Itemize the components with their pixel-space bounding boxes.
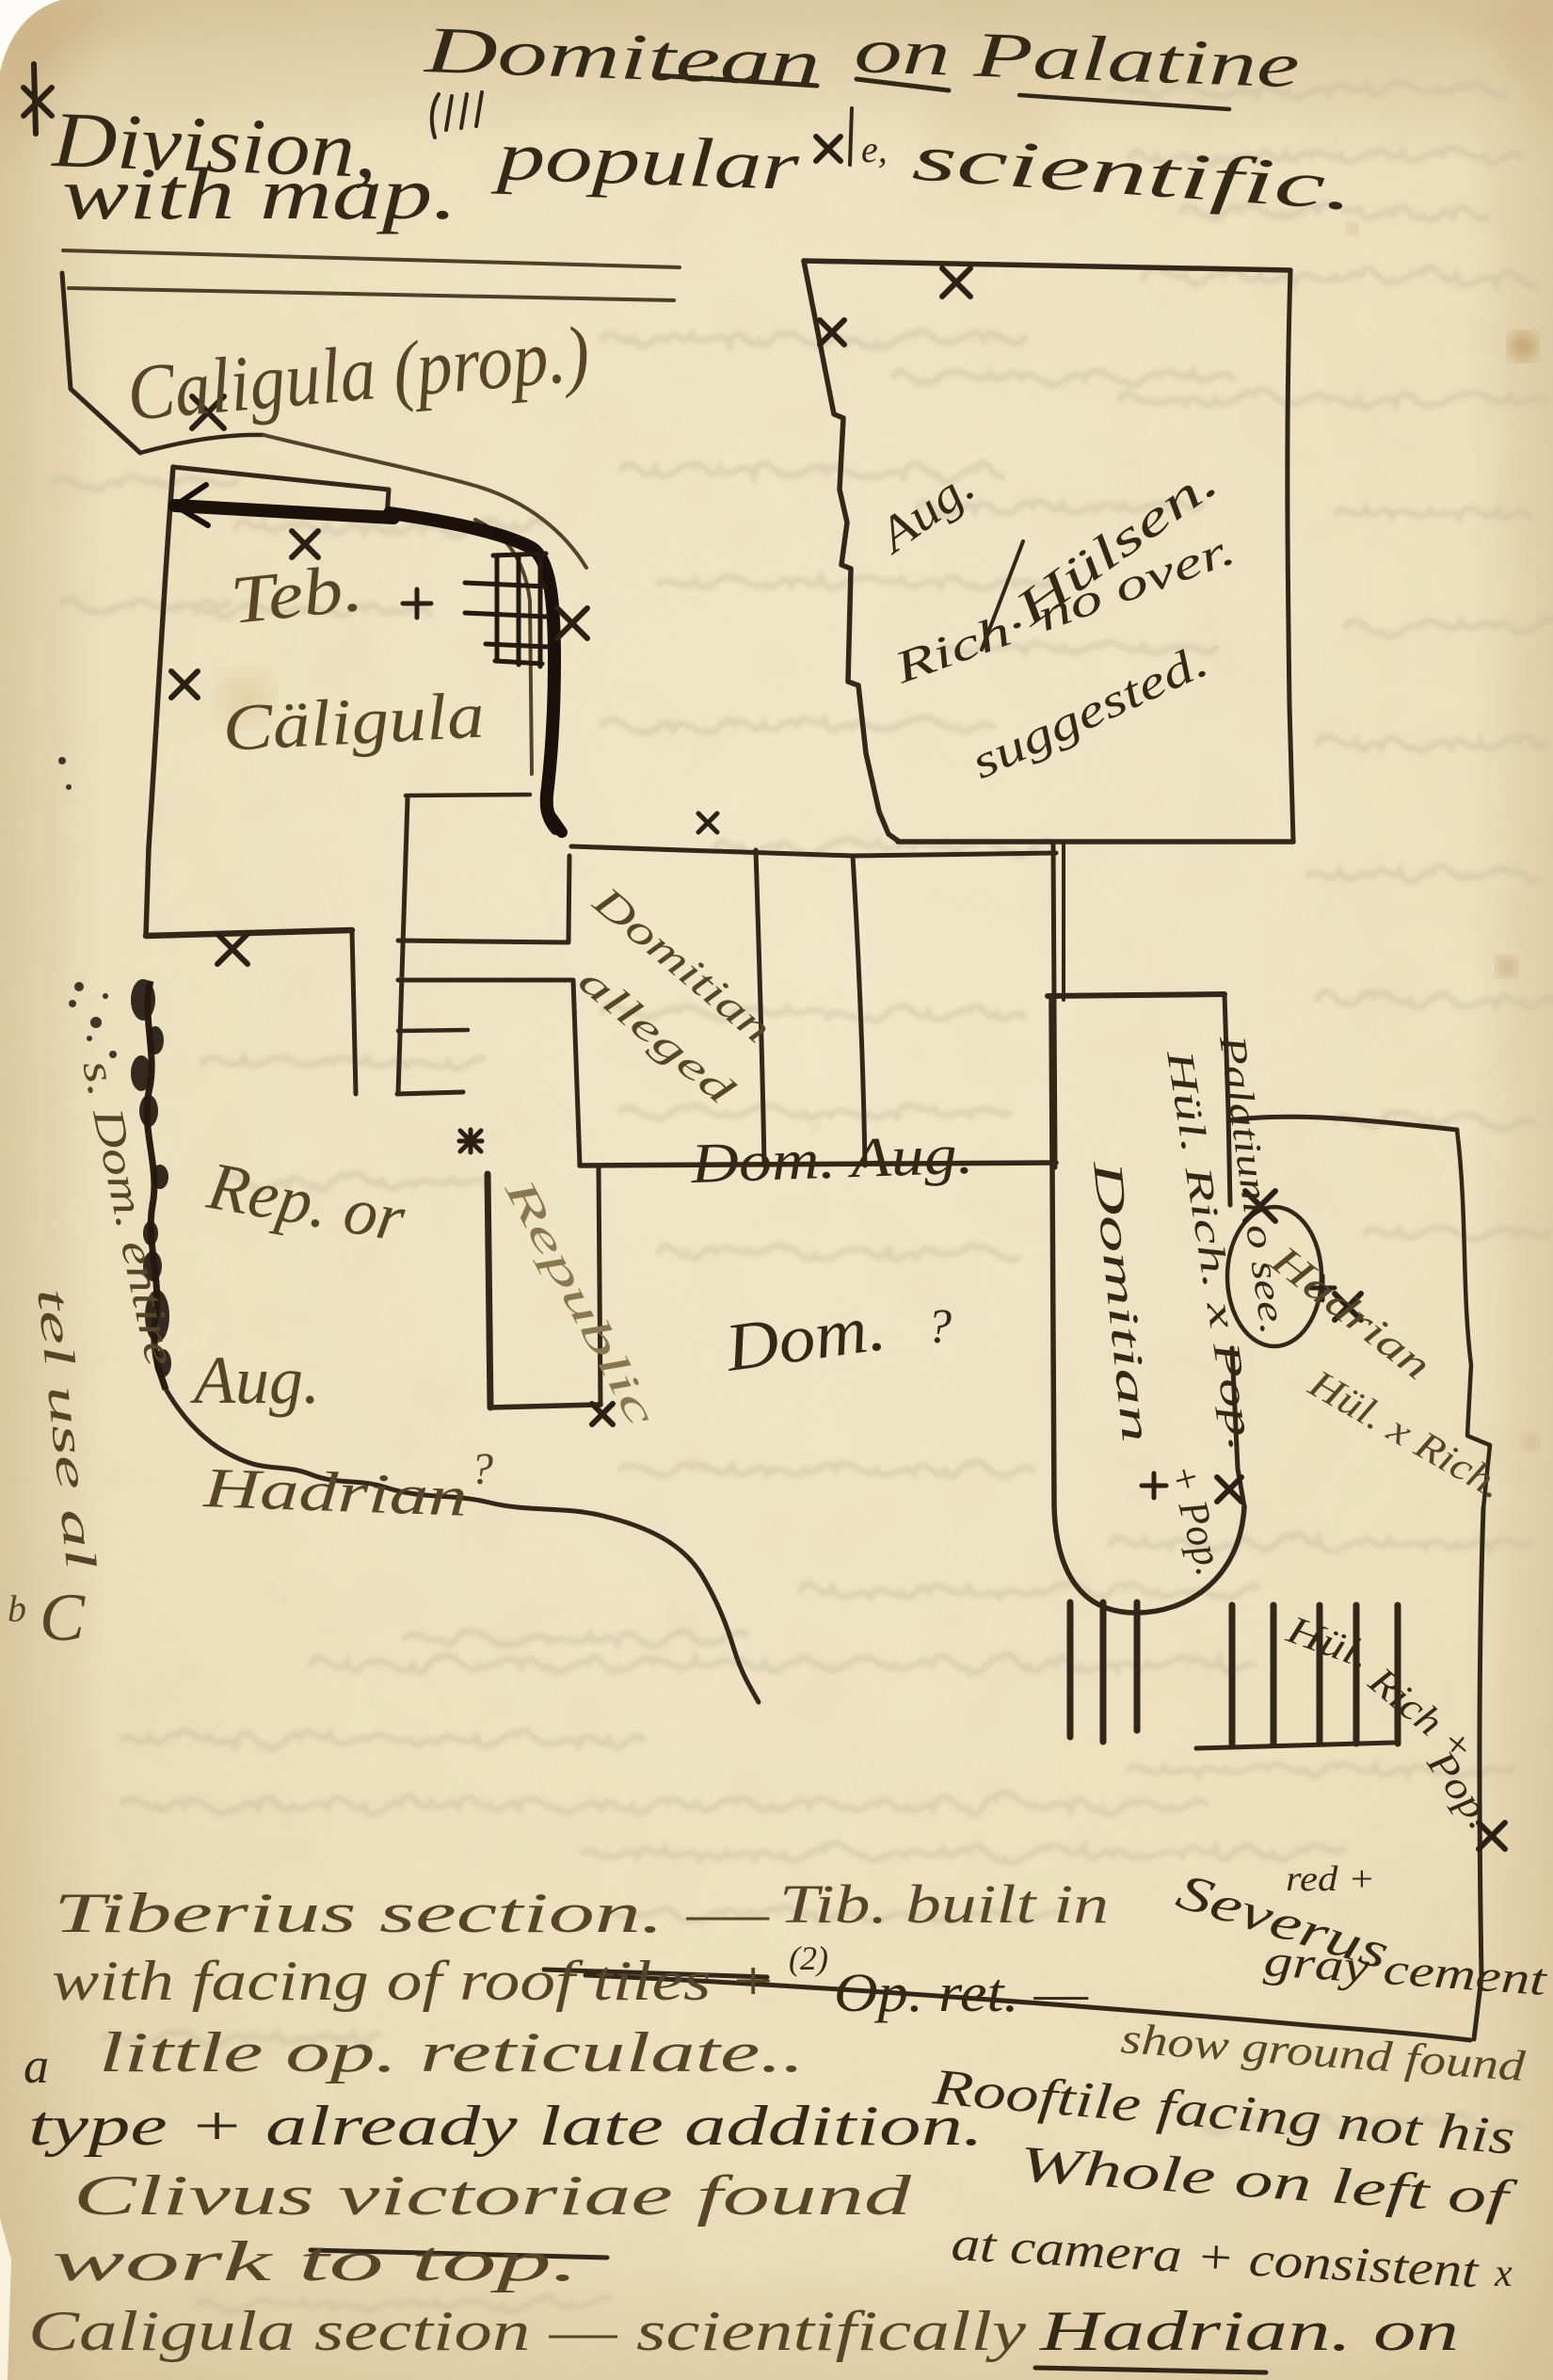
- svg-text:?: ?: [471, 1444, 493, 1494]
- svg-text:red +: red +: [1286, 1859, 1375, 1899]
- svg-text:with map.: with map.: [62, 153, 457, 234]
- svg-text:little op. reticulate..: little op. reticulate..: [99, 2021, 805, 2083]
- svg-text:C: C: [40, 1580, 86, 1655]
- svg-text:Domitean: Domitean: [423, 14, 822, 101]
- svg-text:Caligula section — scientifica: Caligula section — scientifically: [28, 2300, 1026, 2362]
- svg-text:Teb.: Teb.: [227, 550, 366, 638]
- svg-text:Hadrian. on: Hadrian. on: [1038, 2300, 1459, 2362]
- svg-text:type + already late addition.: type + already late addition.: [28, 2095, 984, 2157]
- svg-text:work to top.: work to top.: [52, 2230, 579, 2292]
- svg-text:Tiberius section. —: Tiberius section. —: [54, 1882, 770, 1944]
- svg-text:Aug.: Aug.: [190, 1343, 320, 1418]
- svg-text:popular: popular: [490, 118, 802, 205]
- svg-text:Hadrian: Hadrian: [201, 1456, 469, 1528]
- svg-text:Tib. built in: Tib. built in: [779, 1873, 1109, 1935]
- svg-text:with facing of roof tiles +: with facing of roof tiles +: [52, 1950, 776, 2012]
- svg-text:b: b: [8, 1587, 26, 1630]
- svg-text:x: x: [1494, 2252, 1513, 2295]
- svg-text:e,: e,: [861, 128, 888, 170]
- svg-text:?: ?: [927, 1300, 952, 1354]
- svg-text:(2): (2): [789, 1939, 828, 1977]
- svg-text:Dom. Aug.: Dom. Aug.: [689, 1123, 974, 1195]
- svg-text:Op. ret. —: Op. ret. —: [834, 1962, 1088, 2023]
- svg-text:Cäligula: Cäligula: [221, 680, 487, 765]
- svg-text:a: a: [24, 2037, 49, 2094]
- svg-text:Clivus victoriae found: Clivus victoriae found: [73, 2164, 913, 2227]
